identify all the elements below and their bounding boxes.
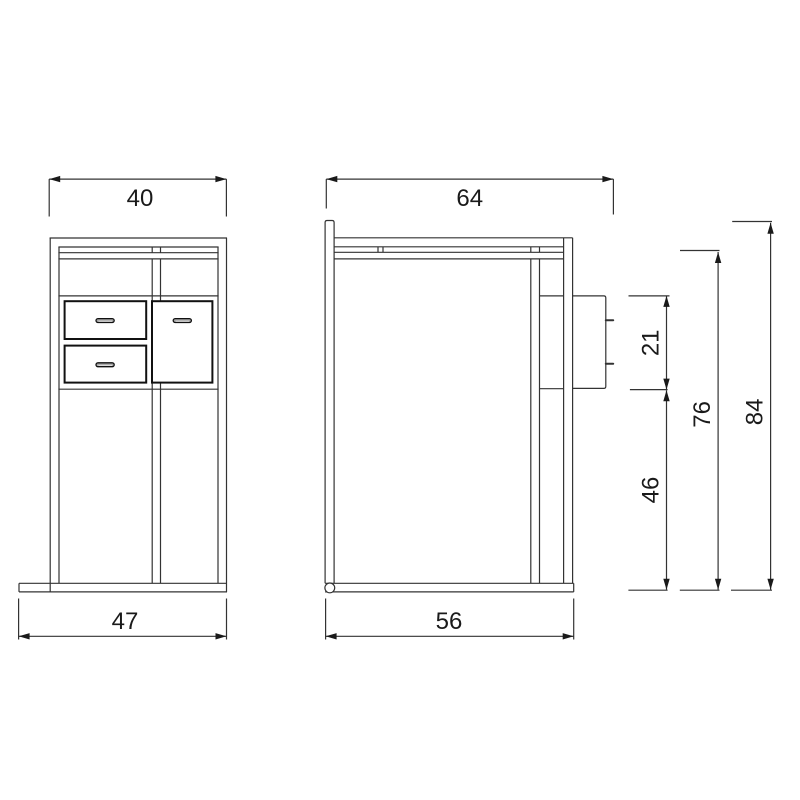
svg-text:84: 84 [742,399,769,426]
svg-text:40: 40 [127,185,154,212]
svg-text:21: 21 [638,329,665,356]
svg-text:64: 64 [456,185,483,212]
svg-text:47: 47 [112,608,139,635]
svg-text:76: 76 [689,401,716,428]
svg-text:46: 46 [638,477,665,504]
svg-text:56: 56 [436,608,463,635]
